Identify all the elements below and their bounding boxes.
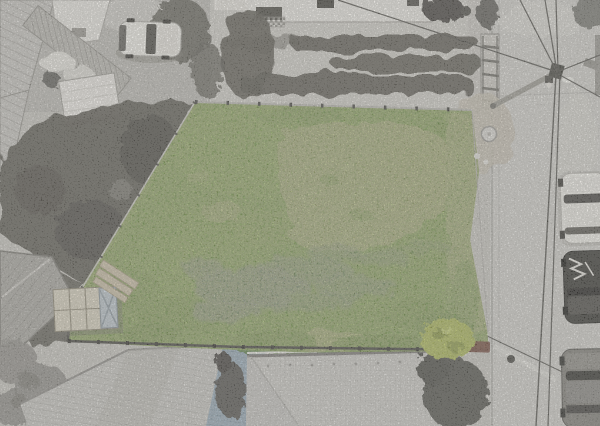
- grain-overlay-light: [0, 0, 600, 426]
- aerial-photo: [0, 0, 600, 426]
- aerial-photo-canvas: [0, 0, 600, 426]
